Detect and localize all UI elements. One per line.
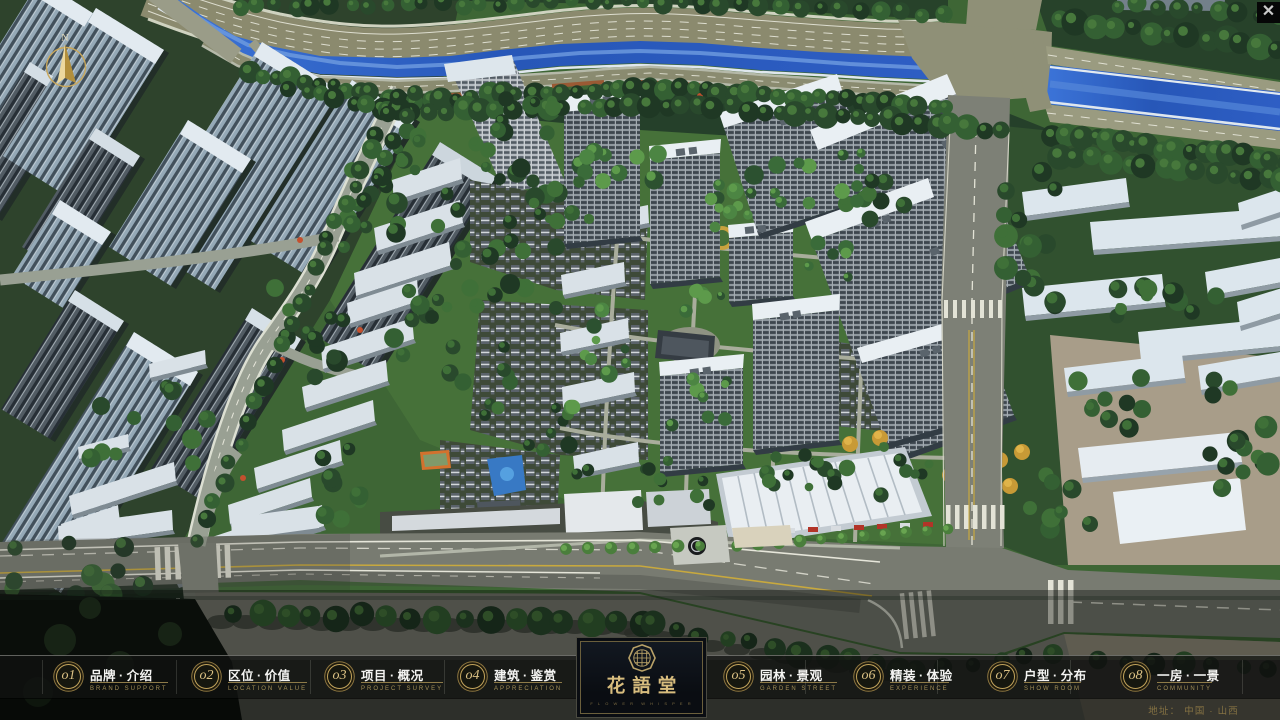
svg-text:N: N bbox=[61, 33, 68, 44]
